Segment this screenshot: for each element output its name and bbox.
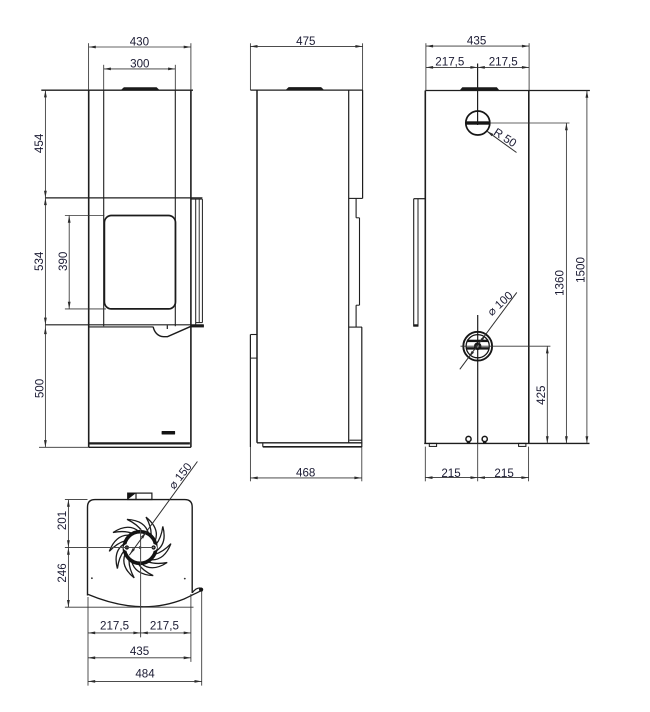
- svg-text:454: 454: [33, 133, 46, 153]
- svg-text:468: 468: [296, 467, 315, 480]
- svg-text:217,5: 217,5: [435, 56, 464, 69]
- svg-text:390: 390: [57, 252, 70, 271]
- svg-text:435: 435: [130, 645, 149, 658]
- svg-text:1360: 1360: [553, 270, 566, 296]
- svg-text:435: 435: [467, 35, 486, 48]
- svg-text:246: 246: [56, 563, 69, 582]
- svg-text:201: 201: [56, 511, 69, 530]
- svg-text:217,5: 217,5: [100, 619, 129, 632]
- svg-text:300: 300: [130, 57, 149, 70]
- svg-text:430: 430: [130, 36, 149, 49]
- svg-text:1500: 1500: [575, 257, 588, 283]
- svg-text:425: 425: [535, 386, 548, 405]
- svg-text:475: 475: [296, 35, 315, 48]
- svg-text:534: 534: [33, 251, 46, 271]
- svg-text:217,5: 217,5: [489, 56, 518, 69]
- svg-text:500: 500: [33, 379, 46, 398]
- svg-text:215: 215: [494, 467, 513, 480]
- svg-text:217,5: 217,5: [150, 619, 179, 632]
- svg-text:484: 484: [135, 667, 155, 680]
- svg-text:215: 215: [441, 467, 460, 480]
